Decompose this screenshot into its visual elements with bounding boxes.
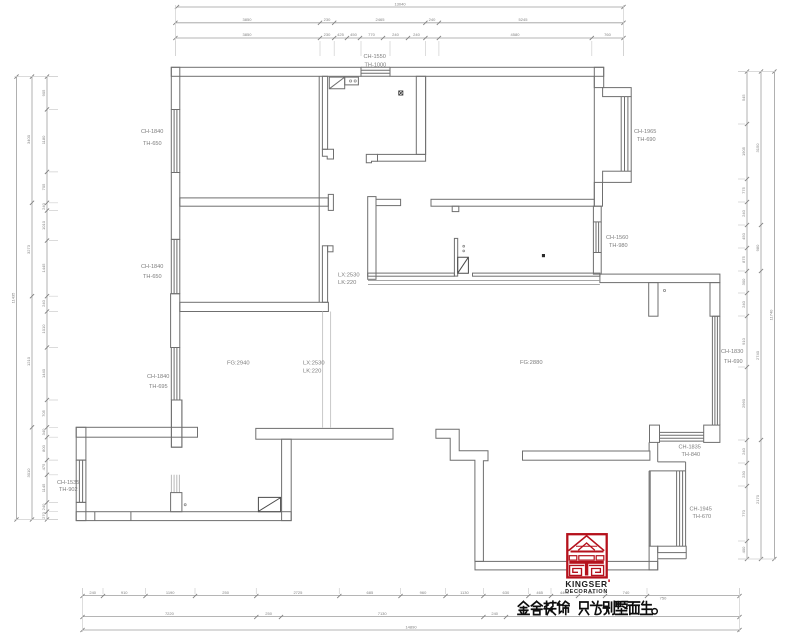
svg-text:240: 240 (429, 17, 436, 22)
svg-text:980: 980 (755, 244, 760, 251)
svg-text:1010: 1010 (41, 324, 46, 334)
svg-text:450: 450 (350, 32, 357, 37)
svg-text:3400: 3400 (26, 134, 31, 144)
svg-text:240: 240 (89, 590, 96, 595)
svg-text:2740: 2740 (755, 350, 760, 360)
svg-text:240: 240 (491, 611, 498, 616)
svg-text:TH-1000: TH-1000 (365, 63, 387, 69)
svg-text:TH-902: TH-902 (59, 487, 78, 493)
svg-text:TH-840: TH-840 (682, 452, 701, 458)
svg-text:FG:2880: FG:2880 (520, 360, 543, 366)
svg-text:TH-980: TH-980 (609, 243, 628, 249)
svg-text:1445: 1445 (41, 263, 46, 273)
svg-text:770: 770 (368, 32, 375, 37)
svg-text:400: 400 (741, 546, 746, 553)
svg-text:475: 475 (41, 463, 46, 470)
svg-text:775: 775 (741, 186, 746, 193)
svg-text:240: 240 (741, 447, 746, 454)
svg-text:2465: 2465 (376, 17, 386, 22)
svg-text:CH-1840: CH-1840 (141, 129, 163, 135)
svg-text:TH-690: TH-690 (637, 137, 656, 143)
svg-text:11435: 11435 (11, 292, 16, 304)
svg-text:770: 770 (741, 509, 746, 516)
svg-text:740: 740 (623, 590, 630, 595)
svg-text:7130: 7130 (378, 611, 388, 616)
svg-text:270: 270 (41, 511, 46, 518)
svg-text:230: 230 (741, 470, 746, 477)
svg-text:425: 425 (337, 32, 344, 37)
svg-text:875: 875 (741, 255, 746, 262)
svg-text:1190: 1190 (166, 590, 175, 595)
svg-text:685: 685 (367, 590, 374, 595)
svg-text:300: 300 (741, 278, 746, 285)
svg-text:3850: 3850 (243, 32, 253, 37)
svg-text:250: 250 (222, 590, 229, 595)
svg-text:3150: 3150 (755, 143, 760, 153)
svg-text:5245: 5245 (519, 17, 529, 22)
svg-text:CH-1550: CH-1550 (364, 54, 386, 60)
svg-text:705: 705 (41, 183, 46, 190)
svg-text:2170: 2170 (755, 494, 760, 504)
svg-text:545: 545 (741, 94, 746, 101)
svg-text:TH-690: TH-690 (724, 359, 743, 365)
svg-text:TH-695: TH-695 (149, 384, 168, 390)
svg-text:240: 240 (741, 300, 746, 307)
svg-text:1145: 1145 (41, 483, 46, 492)
svg-text:3010: 3010 (26, 468, 31, 478)
svg-text:1440: 1440 (41, 368, 46, 378)
svg-text:240: 240 (41, 503, 46, 510)
svg-text:1130: 1130 (460, 590, 469, 595)
svg-text:KINGSER: KINGSER (565, 579, 607, 589)
svg-text:CH-1835: CH-1835 (679, 445, 701, 451)
svg-text:465: 465 (536, 590, 543, 595)
svg-text:760: 760 (604, 32, 611, 37)
svg-text:4580: 4580 (511, 32, 521, 37)
svg-text:240: 240 (413, 32, 420, 37)
svg-text:1180: 1180 (41, 135, 46, 144)
svg-text:750: 750 (660, 596, 667, 601)
svg-text:630: 630 (503, 590, 510, 595)
svg-text:LX:2530: LX:2530 (303, 361, 325, 367)
svg-text:CH-1840: CH-1840 (141, 264, 163, 270)
svg-text:CH-1965: CH-1965 (634, 129, 656, 135)
svg-text:705: 705 (41, 409, 46, 416)
svg-text:1010: 1010 (41, 220, 46, 230)
svg-text:1210: 1210 (26, 356, 31, 366)
svg-text:2960: 2960 (741, 398, 746, 408)
svg-text:TH-650: TH-650 (143, 141, 162, 147)
svg-text:LK:220: LK:220 (338, 280, 356, 286)
svg-text:TH-670: TH-670 (693, 514, 712, 520)
svg-text:CH-1840: CH-1840 (147, 374, 169, 380)
svg-text:250: 250 (265, 611, 272, 616)
svg-text:11740: 11740 (769, 309, 774, 321)
svg-text:230: 230 (324, 32, 331, 37)
svg-text:230: 230 (324, 17, 331, 22)
svg-text:905: 905 (41, 89, 46, 96)
svg-text:3850: 3850 (243, 17, 253, 22)
svg-text:1905: 1905 (741, 146, 746, 156)
svg-text:LK:220: LK:220 (303, 369, 321, 375)
svg-text:2725: 2725 (293, 590, 303, 595)
svg-text:CH-1535: CH-1535 (57, 480, 79, 486)
svg-text:TH-650: TH-650 (143, 274, 162, 280)
svg-text:7220: 7220 (165, 611, 175, 616)
svg-text:910: 910 (121, 590, 128, 595)
svg-text:14890: 14890 (405, 624, 417, 629)
svg-text:240: 240 (41, 202, 46, 209)
svg-text:340: 340 (41, 428, 46, 435)
svg-text:13040: 13040 (394, 2, 406, 7)
svg-text:FG:2940: FG:2940 (227, 361, 250, 367)
svg-text:CH-1830: CH-1830 (721, 349, 743, 355)
svg-text:CH-1945: CH-1945 (690, 507, 712, 513)
svg-text:240: 240 (41, 299, 46, 306)
svg-text:DECORATION: DECORATION (565, 589, 608, 595)
svg-text:910: 910 (741, 337, 746, 344)
svg-text:3273: 3273 (26, 244, 31, 254)
svg-text:240: 240 (392, 32, 399, 37)
svg-text:960: 960 (420, 590, 427, 595)
svg-text:LX:2530: LX:2530 (338, 273, 360, 279)
svg-text:240: 240 (741, 209, 746, 216)
svg-text:CH-1560: CH-1560 (606, 235, 628, 241)
svg-text:450: 450 (741, 232, 746, 239)
svg-text:800: 800 (41, 444, 46, 451)
